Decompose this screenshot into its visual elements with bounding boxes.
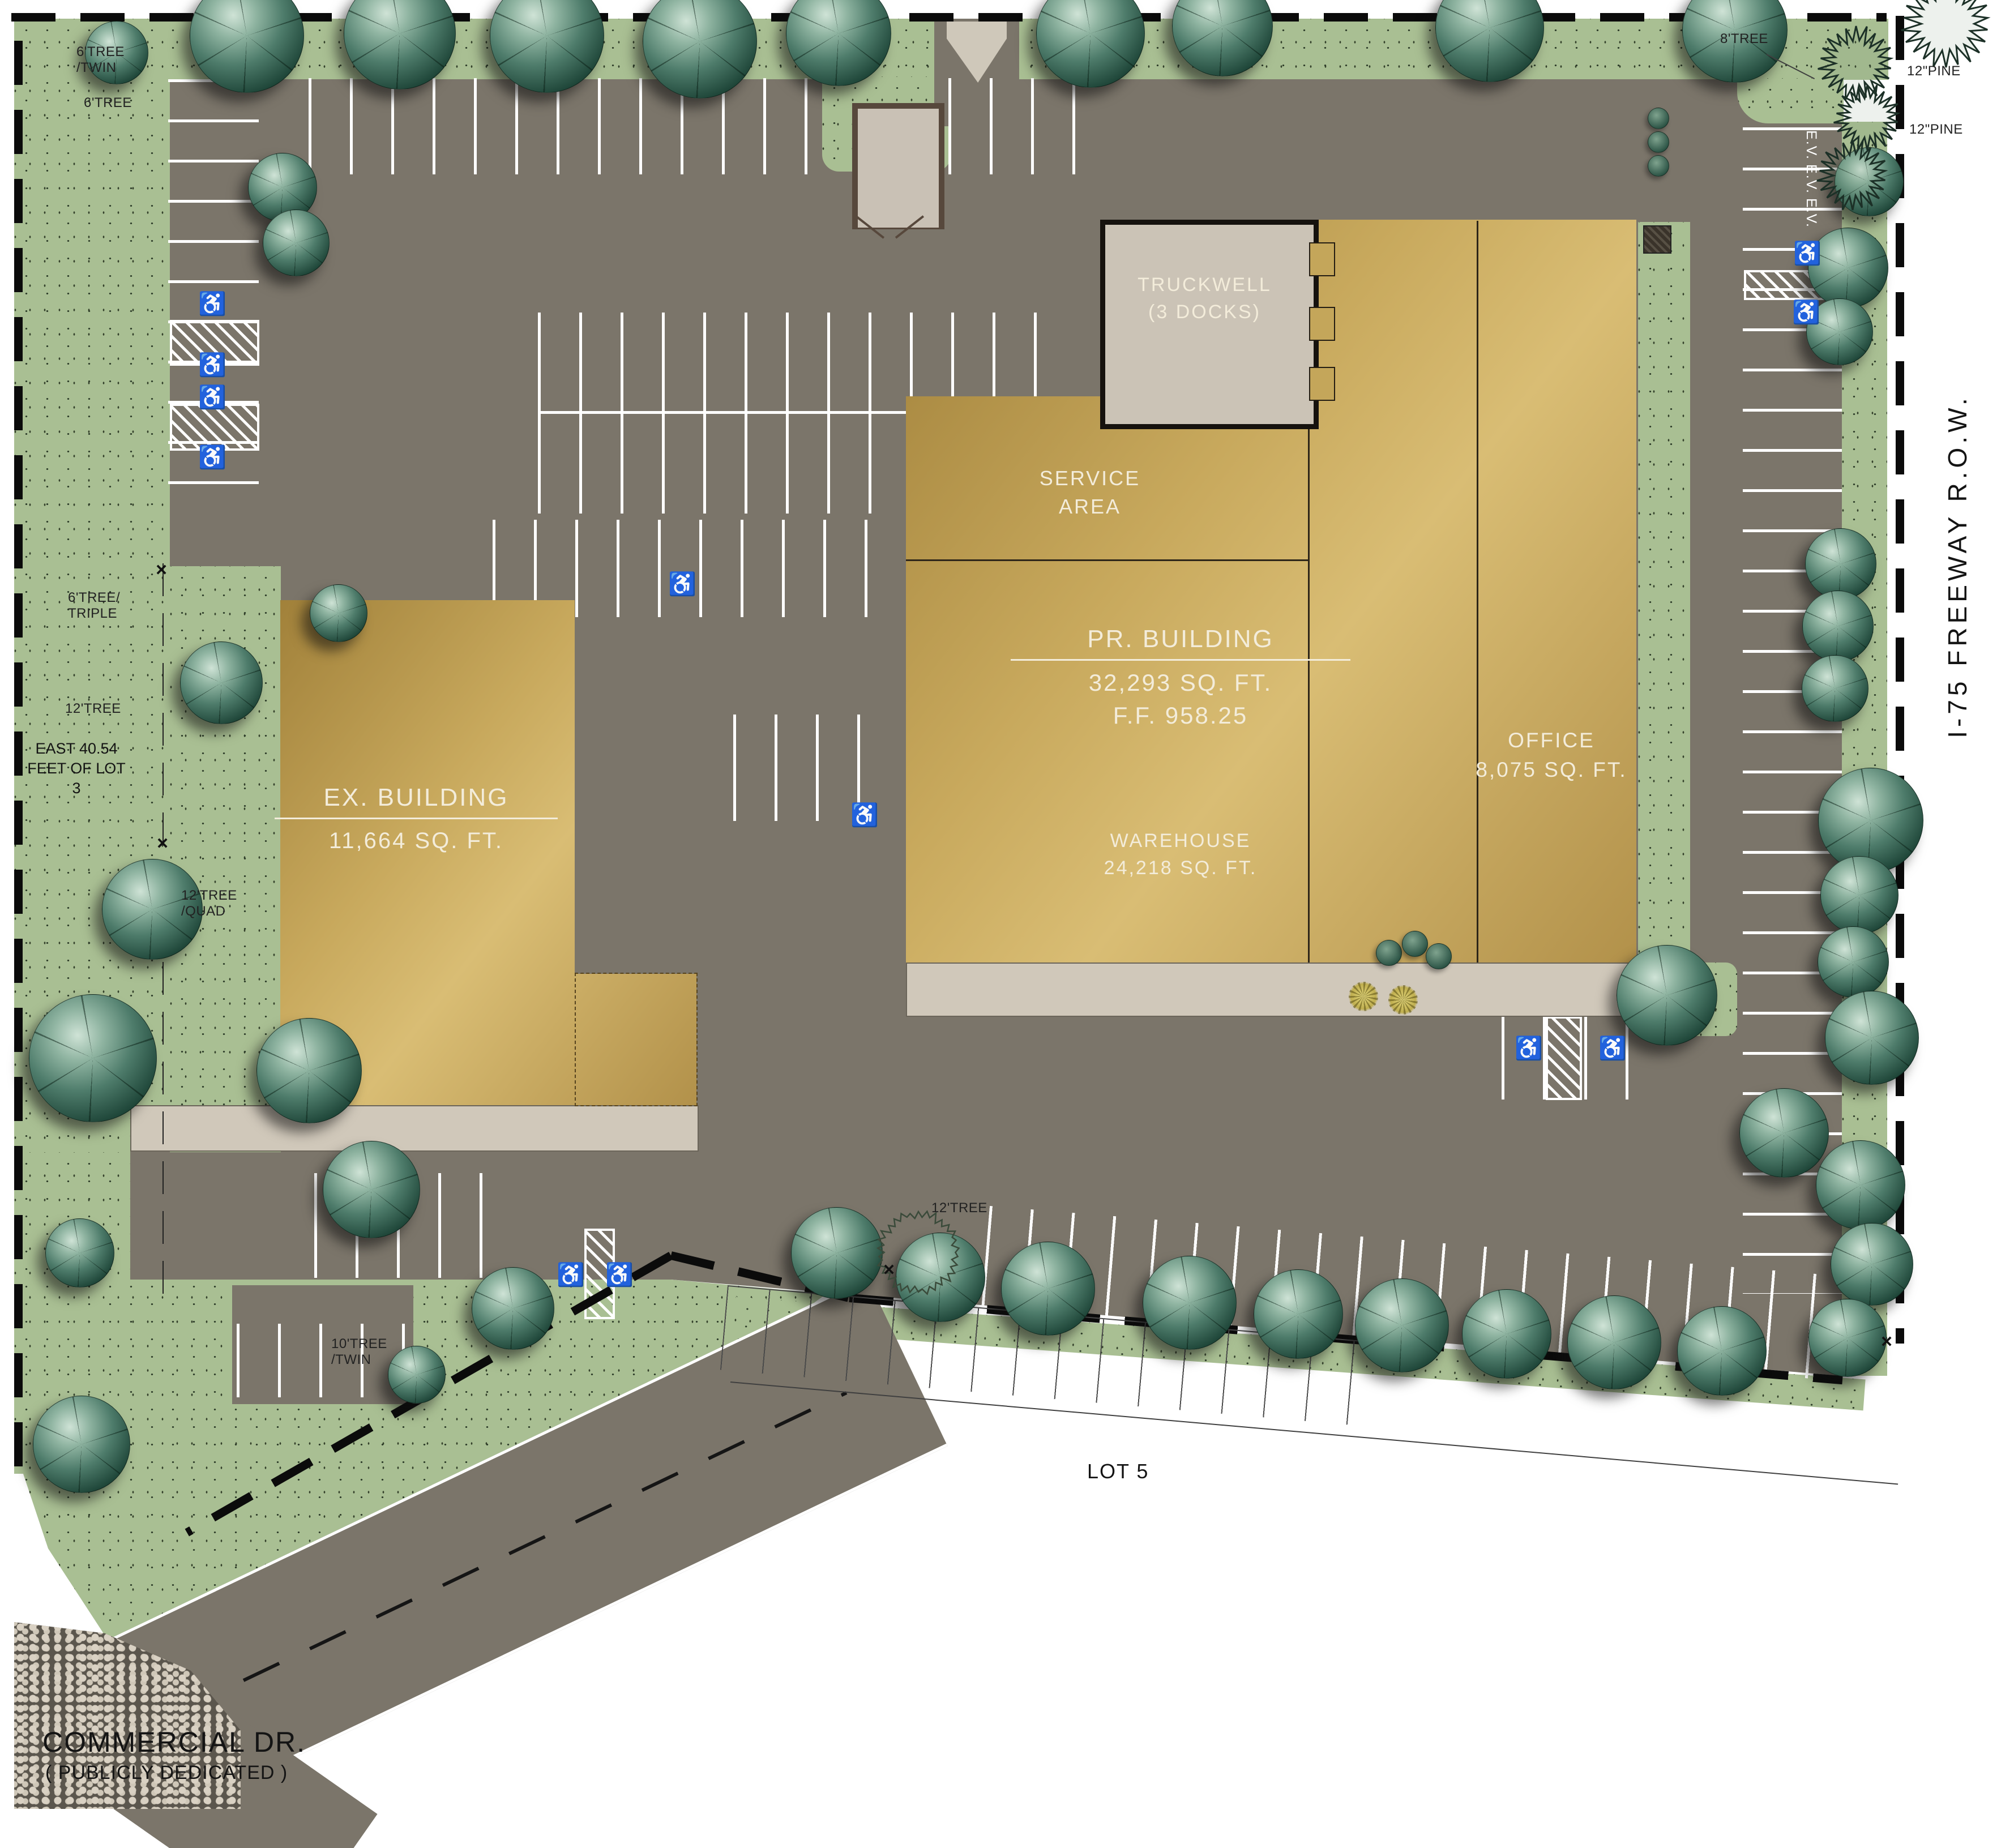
tree-icon	[1355, 1278, 1449, 1372]
handicap-icon: ♿	[850, 804, 879, 827]
warehouse-label: WAREHOUSE 24,218 SQ. FT.	[1011, 828, 1350, 882]
handicap-icon: ♿	[1598, 1037, 1627, 1060]
tree-icon	[1802, 591, 1874, 662]
shrub-icon	[1648, 108, 1669, 129]
ornamental-grass-icon	[1388, 985, 1418, 1015]
handicap-icon: ♿	[198, 446, 226, 469]
tree-icon	[1808, 228, 1888, 308]
tree-label: 12'TREE	[931, 1200, 987, 1216]
tree-icon	[1143, 1256, 1237, 1350]
tree-icon	[180, 641, 263, 724]
lot5-label: LOT 5	[1087, 1460, 1149, 1483]
handicap-icon: ♿	[1792, 301, 1820, 324]
tree-icon	[1739, 1088, 1829, 1178]
handicap-icon: ♿	[557, 1264, 585, 1286]
handicap-icon: ♿	[198, 386, 226, 409]
site-plan: ♿ ♿ ♿ ♿ ♿ ♿ ♿ ♿ ♿ ♿ ♿ ♿ E.V. E.V. E.V. ×…	[0, 0, 2014, 1848]
tree-icon	[472, 1267, 554, 1350]
tree-icon	[490, 0, 604, 93]
freeway-row-label: I-75 FREEWAY R.O.W.	[1942, 283, 1974, 849]
tree-icon	[33, 1396, 130, 1493]
tree-label: 6'TREE/TWIN	[76, 44, 125, 75]
commercial-dr-label: COMMERCIAL DR.	[42, 1726, 306, 1759]
ev-stall-label: E.V.	[1803, 130, 1819, 160]
handicap-icon: ♿	[668, 573, 696, 596]
tree-icon	[344, 0, 456, 89]
shrub-icon	[1426, 943, 1452, 969]
tree-icon	[1435, 0, 1544, 82]
tree-icon	[1818, 926, 1889, 998]
survey-x-mark: ×	[1881, 1331, 1892, 1353]
tree-label: 12'TREE/QUAD	[181, 888, 237, 919]
tree-icon	[1805, 528, 1876, 600]
tree-label: 10'TREE/TWIN	[331, 1336, 387, 1367]
pine-tree-icon	[1813, 136, 1892, 215]
tree-icon	[1001, 1242, 1095, 1336]
tree-icon	[786, 0, 891, 86]
tree-icon	[791, 1207, 883, 1299]
tree-icon	[388, 1346, 446, 1404]
truckwell-label: TRUCKWELL (3 DOCKS)	[1110, 272, 1299, 326]
tree-icon	[29, 994, 157, 1122]
handicap-icon: ♿	[605, 1264, 634, 1286]
commercial-dr-note: ( PUBLICLY DEDICATED )	[45, 1762, 288, 1784]
tree-icon	[310, 584, 367, 642]
tree-icon	[1567, 1295, 1661, 1389]
east-forty-label: EAST 40.54 FEET OF LOT 3	[23, 739, 130, 798]
tree-icon	[1825, 991, 1919, 1085]
shrub-icon	[1402, 931, 1428, 957]
survey-x-mark: ×	[883, 1259, 895, 1281]
tree-label: 12"PINE	[1907, 63, 1961, 79]
tree-icon	[1808, 1299, 1887, 1377]
shrub-icon	[1376, 940, 1402, 966]
outline-tree-icon	[872, 1206, 965, 1299]
tree-label: 8'TREE	[1720, 31, 1768, 47]
tree-icon	[263, 209, 330, 276]
ornamental-grass-icon	[1349, 982, 1378, 1011]
tree-icon	[1036, 0, 1145, 88]
tree-layer	[0, 0, 2014, 1848]
ev-stall-label: E.V.	[1803, 198, 1819, 228]
tree-icon	[256, 1018, 362, 1123]
shrub-icon	[1648, 155, 1669, 177]
tree-icon	[643, 0, 757, 99]
tree-icon	[1820, 856, 1898, 934]
pr-building-label: PR. BUILDING 32,293 SQ. FT. F.F. 958.25	[1011, 622, 1350, 733]
tree-icon	[1254, 1269, 1343, 1359]
tree-icon	[1172, 0, 1273, 76]
handicap-icon: ♿	[198, 293, 226, 315]
tree-icon	[323, 1141, 420, 1238]
tree-icon	[1816, 1140, 1905, 1230]
tree-icon	[1677, 1306, 1767, 1396]
handicap-icon: ♿	[1793, 242, 1821, 265]
handicap-icon: ♿	[1515, 1037, 1543, 1060]
tree-label: 6'TREE/TRIPLE	[68, 590, 120, 621]
service-area-label: SERVICE AREA	[1005, 464, 1175, 521]
office-label: OFFICE 8,075 SQ. FT.	[1466, 726, 1636, 785]
tree-icon	[1462, 1289, 1551, 1379]
tree-icon	[45, 1218, 114, 1287]
tree-label: 12'TREE	[65, 701, 121, 717]
tree-icon	[190, 0, 304, 93]
shrub-icon	[1648, 131, 1669, 153]
pine-tree-icon	[1897, 0, 1995, 72]
ev-stall-label: E.V.	[1803, 164, 1819, 194]
handicap-icon: ♿	[198, 354, 226, 377]
survey-x-mark: ×	[157, 833, 168, 855]
tree-label: 12"PINE	[1909, 122, 1963, 138]
tree-icon	[1802, 655, 1868, 722]
ex-building-label: EX. BUILDING 11,664 SQ. FT.	[275, 780, 558, 857]
tree-label: 6'TREE	[84, 95, 132, 111]
tree-icon	[1617, 945, 1717, 1046]
survey-x-mark: ×	[156, 559, 167, 581]
tree-icon	[1831, 1223, 1913, 1306]
